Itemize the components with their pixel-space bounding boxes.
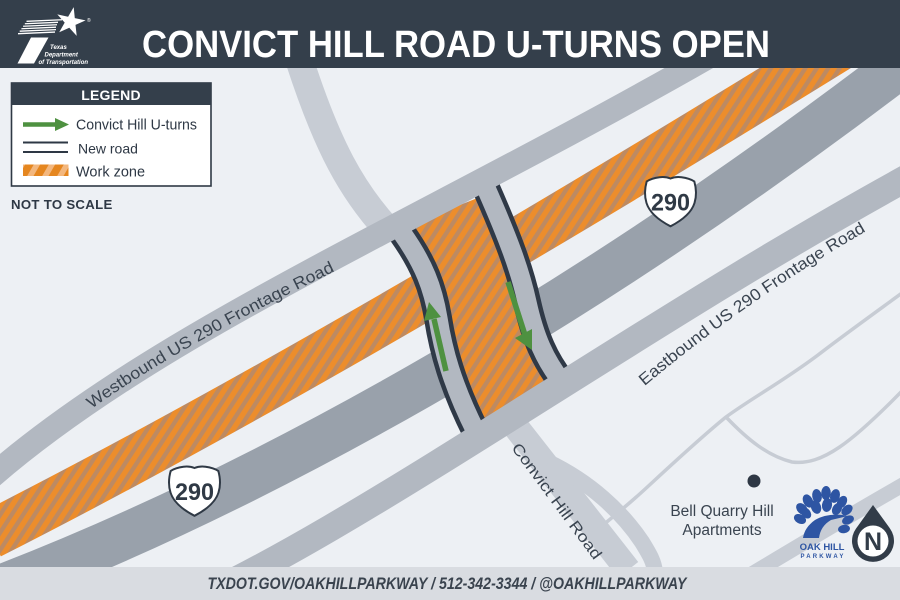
svg-text:Texas: Texas [50, 45, 67, 51]
svg-text:LEGEND: LEGEND [81, 87, 141, 103]
svg-text:CONVICT HILL ROAD U-TURNS OPEN: CONVICT HILL ROAD U-TURNS OPEN [142, 24, 770, 66]
svg-text:New road: New road [78, 141, 138, 157]
svg-text:Bell Quarry Hill: Bell Quarry Hill [670, 503, 773, 520]
svg-text:of Transportation: of Transportation [39, 60, 89, 66]
svg-text:NOT TO SCALE: NOT TO SCALE [11, 197, 113, 212]
svg-text:PARKWAY: PARKWAY [800, 554, 845, 560]
svg-text:Department: Department [45, 53, 79, 59]
svg-text:TXDOT.GOV/OAKHILLPARKWAY / 512: TXDOT.GOV/OAKHILLPARKWAY / 512-342-3344 … [208, 574, 688, 593]
svg-text:®: ® [87, 17, 91, 24]
svg-text:N: N [864, 528, 882, 556]
svg-text:Apartments: Apartments [682, 522, 762, 539]
svg-text:Work zone: Work zone [76, 165, 145, 181]
svg-text:Convict Hill U-turns: Convict Hill U-turns [76, 118, 197, 134]
svg-text:OAK HILL: OAK HILL [800, 542, 845, 553]
